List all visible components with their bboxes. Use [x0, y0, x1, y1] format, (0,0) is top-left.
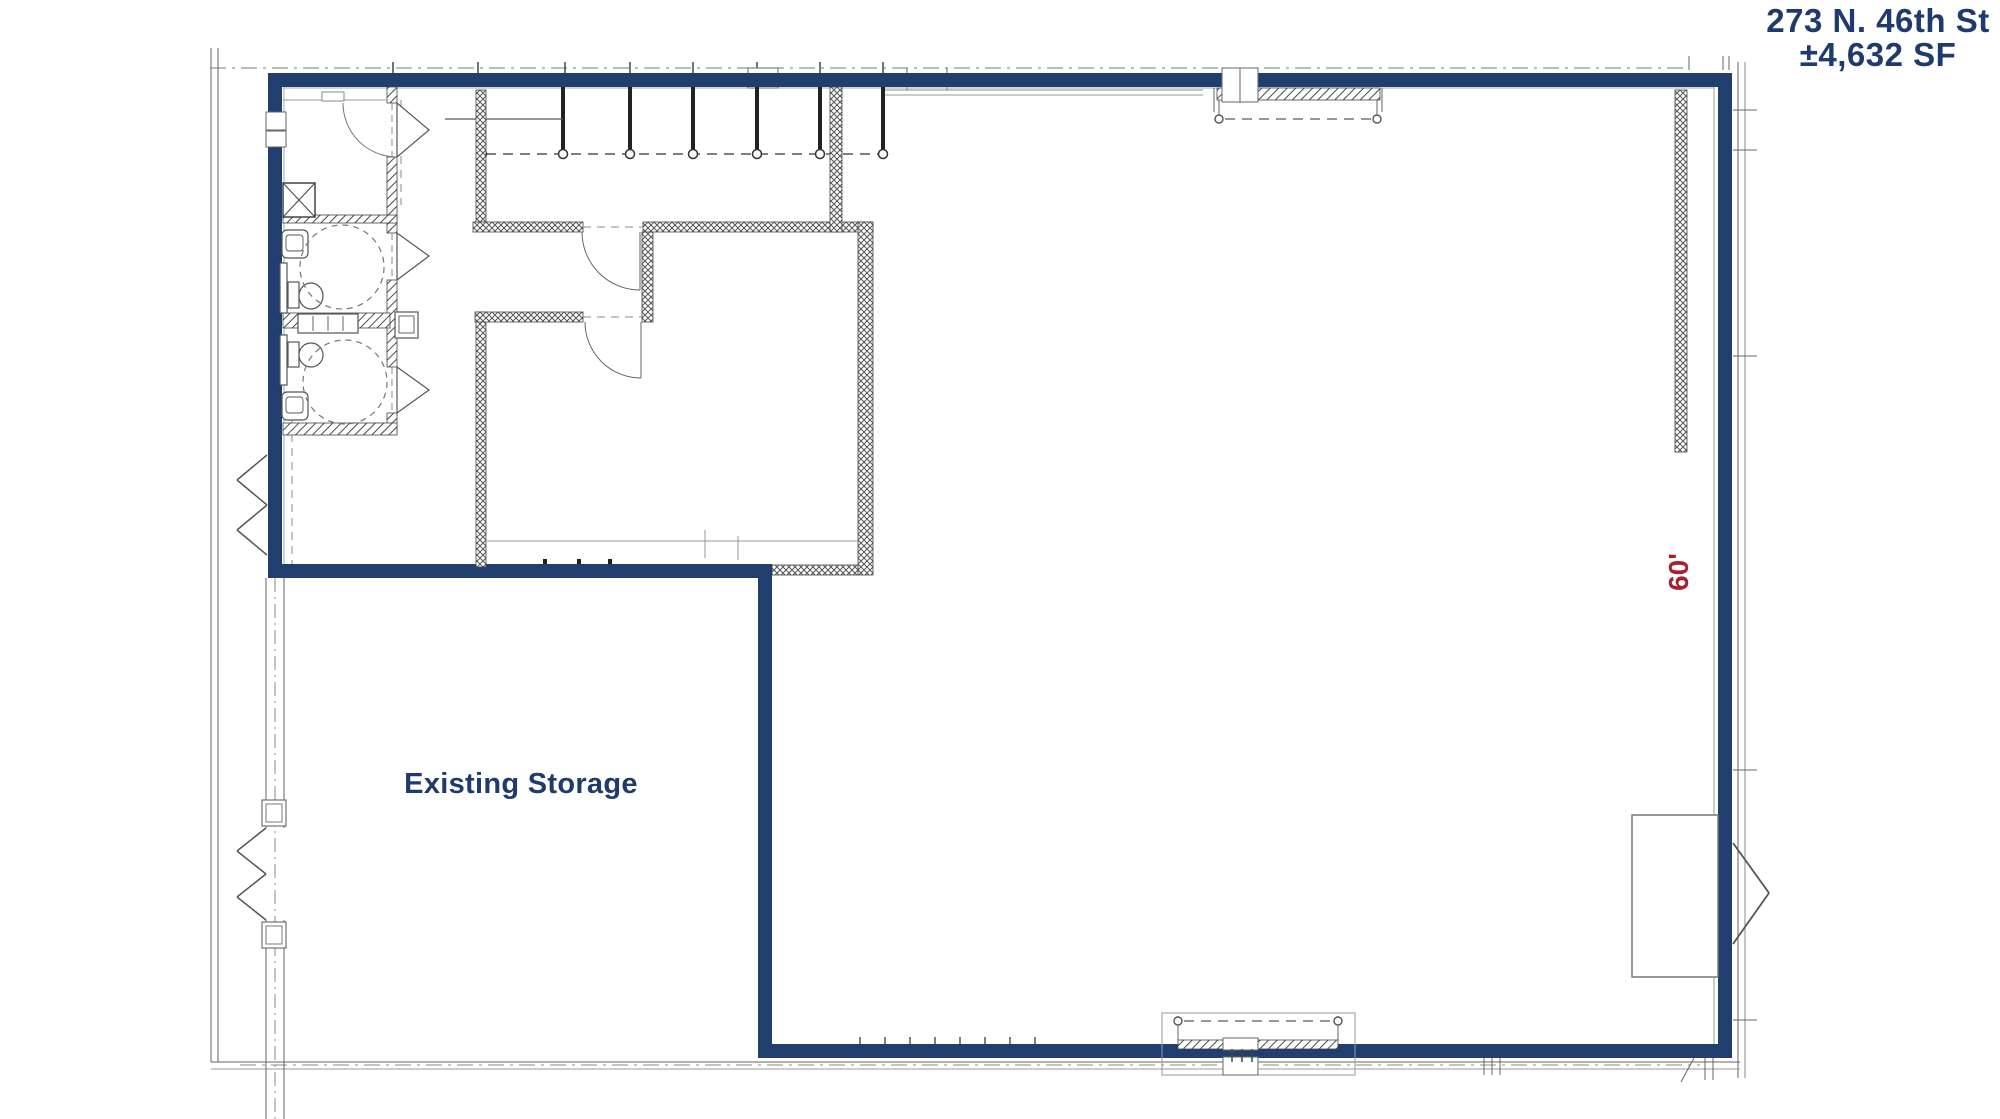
toilet-bowl: [299, 343, 323, 367]
boundary-storage-right-wall: [758, 564, 772, 1058]
lease-boundary: [268, 73, 1732, 1058]
right-wall-features: [1632, 90, 1769, 977]
shelf: [266, 112, 286, 130]
address-line: 273 N. 46th St: [1756, 4, 2000, 38]
west-exterior-doors: [237, 455, 267, 920]
restroom-block: [266, 87, 429, 435]
existing-shell-lines: [210, 48, 1757, 1119]
boundary-right-wall: [1718, 73, 1732, 1058]
toilet-tank: [288, 342, 299, 367]
floor-plan-canvas: 273 N. 46th St ±4,632 SF Existing Storag…: [0, 0, 2000, 1119]
area-line: ±4,632 SF: [1756, 38, 2000, 72]
storage-west-double-door: [237, 828, 266, 920]
toilet-tank: [288, 282, 299, 308]
boundary-top-wall: [268, 73, 1732, 87]
grab-bar: [280, 263, 287, 313]
boundary-left-wall: [268, 73, 282, 578]
interior-wall-strip: [1675, 90, 1687, 452]
restroom-2-fixtures: [280, 335, 387, 424]
shelf: [266, 131, 286, 147]
lavatory-counter: [298, 314, 358, 333]
equipment-pad: [1632, 815, 1718, 977]
storage-room-label: Existing Storage: [400, 768, 642, 801]
west-double-door-upper: [237, 455, 267, 555]
storefront-post-row: [401, 87, 888, 205]
door-swing-restroom-1: [397, 233, 429, 280]
mop-sink: [283, 183, 315, 217]
door-swing-restroom-2: [397, 367, 429, 413]
door-swing-utility: [397, 103, 429, 157]
boundary-storage-top-wall: [268, 564, 772, 578]
grab-bar: [280, 335, 287, 385]
center-rooms: [473, 87, 873, 575]
drinking-fountain: [395, 312, 418, 338]
right-wall-dimension-label: 60': [1653, 542, 1705, 602]
plan-header: 273 N. 46th St ±4,632 SF: [1756, 4, 2000, 72]
restroom-1-fixtures: [280, 225, 384, 313]
